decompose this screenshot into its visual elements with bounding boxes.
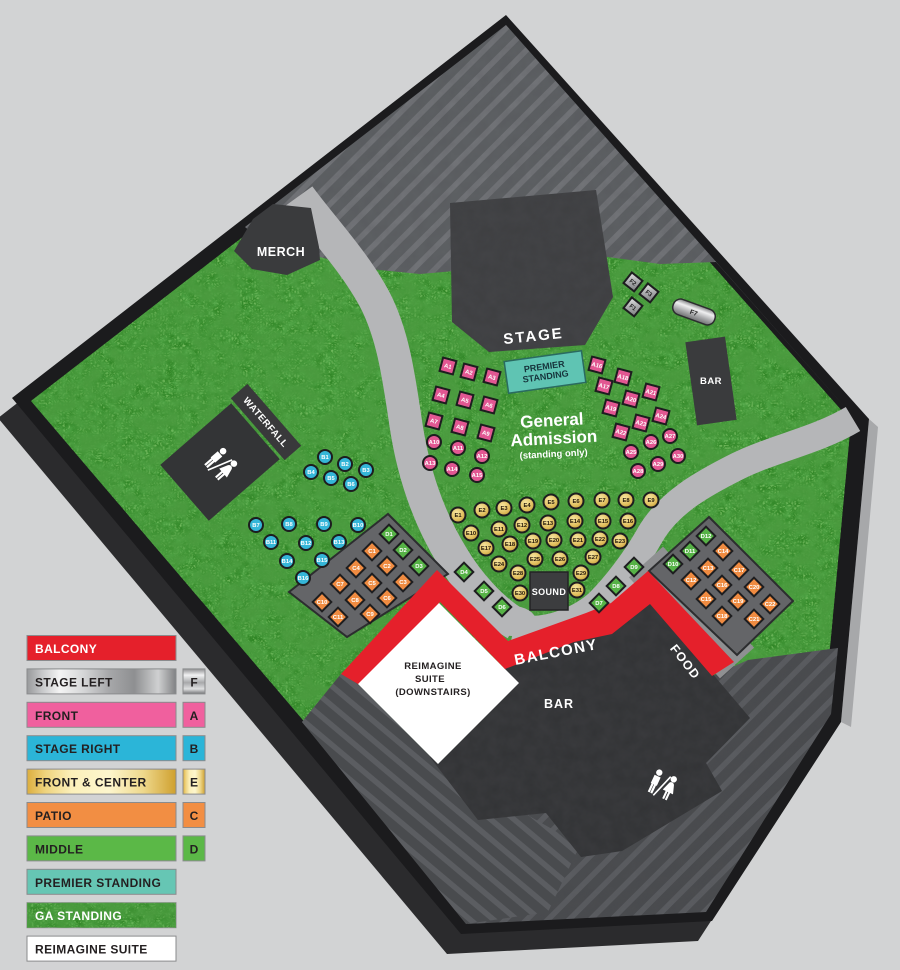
svg-text:C: C — [190, 809, 199, 823]
svg-text:E11: E11 — [494, 527, 505, 533]
svg-text:REIMAGINE SUITE: REIMAGINE SUITE — [35, 943, 148, 957]
svg-text:MERCH: MERCH — [257, 245, 305, 259]
svg-text:B16: B16 — [298, 576, 309, 582]
svg-text:B1: B1 — [321, 455, 329, 461]
svg-text:E23: E23 — [615, 539, 626, 545]
svg-text:A12: A12 — [477, 454, 488, 460]
svg-text:E3: E3 — [500, 506, 508, 512]
svg-text:C13: C13 — [703, 566, 715, 572]
svg-text:C14: C14 — [718, 549, 730, 555]
svg-text:MIDDLE: MIDDLE — [35, 842, 83, 856]
svg-text:A: A — [190, 709, 199, 723]
svg-text:C9: C9 — [366, 612, 374, 618]
svg-text:E28: E28 — [513, 571, 524, 577]
svg-text:B8: B8 — [285, 522, 293, 528]
svg-text:B4: B4 — [307, 470, 315, 476]
svg-text:D11: D11 — [685, 549, 696, 555]
svg-text:STAGE LEFT: STAGE LEFT — [35, 675, 113, 689]
svg-text:C2: C2 — [383, 564, 391, 570]
svg-text:A14: A14 — [447, 467, 458, 473]
svg-text:E6: E6 — [572, 499, 580, 505]
svg-text:E4: E4 — [523, 503, 531, 509]
svg-text:E26: E26 — [555, 557, 566, 563]
svg-text:SOUND: SOUND — [532, 587, 567, 597]
svg-text:E22: E22 — [595, 537, 605, 543]
svg-text:C15: C15 — [701, 597, 713, 603]
svg-text:B14: B14 — [282, 559, 293, 565]
svg-text:A10: A10 — [429, 440, 440, 446]
svg-text:E18: E18 — [505, 542, 516, 548]
svg-text:E19: E19 — [528, 539, 539, 545]
svg-text:C10: C10 — [317, 600, 329, 606]
svg-text:B13: B13 — [334, 540, 345, 546]
svg-text:D2: D2 — [399, 548, 407, 554]
svg-text:C22: C22 — [765, 602, 777, 608]
svg-text:E1: E1 — [454, 513, 462, 519]
svg-text:PREMIER STANDING: PREMIER STANDING — [35, 876, 161, 890]
svg-text:C18: C18 — [717, 614, 729, 620]
svg-text:C1: C1 — [368, 549, 376, 555]
svg-text:E29: E29 — [576, 571, 587, 577]
svg-text:E14: E14 — [570, 519, 581, 525]
svg-text:E10: E10 — [466, 531, 476, 537]
svg-text:E31: E31 — [572, 588, 583, 594]
svg-text:D3: D3 — [415, 564, 423, 570]
svg-text:E5: E5 — [547, 500, 555, 506]
svg-text:E17: E17 — [481, 546, 491, 552]
svg-text:C12: C12 — [686, 578, 698, 584]
svg-text:C17: C17 — [734, 568, 746, 574]
svg-text:E7: E7 — [598, 498, 605, 504]
svg-text:C3: C3 — [399, 580, 407, 586]
svg-text:FRONT & CENTER: FRONT & CENTER — [35, 776, 147, 790]
svg-text:SUITE: SUITE — [415, 674, 445, 685]
svg-text:B2: B2 — [341, 462, 348, 468]
svg-text:C4: C4 — [352, 566, 360, 572]
svg-text:E13: E13 — [543, 521, 554, 527]
svg-text:REIMAGINE: REIMAGINE — [404, 661, 461, 672]
svg-text:D: D — [190, 842, 199, 856]
svg-text:A29: A29 — [653, 462, 664, 468]
svg-text:E15: E15 — [598, 519, 609, 525]
svg-text:B6: B6 — [347, 482, 355, 488]
svg-text:E2: E2 — [478, 508, 485, 514]
svg-text:D5: D5 — [480, 589, 488, 595]
svg-text:A13: A13 — [425, 461, 436, 467]
svg-text:B11: B11 — [266, 540, 277, 546]
svg-text:D10: D10 — [668, 562, 680, 568]
svg-text:D4: D4 — [460, 570, 468, 576]
svg-text:E27: E27 — [588, 555, 598, 561]
svg-text:D6: D6 — [498, 605, 506, 611]
svg-text:F: F — [190, 675, 197, 689]
svg-text:A30: A30 — [673, 454, 684, 460]
svg-text:E: E — [190, 776, 198, 790]
svg-text:GA STANDING: GA STANDING — [35, 909, 122, 923]
svg-text:B12: B12 — [301, 541, 312, 547]
svg-text:E24: E24 — [494, 562, 505, 568]
svg-text:C19: C19 — [733, 599, 745, 605]
svg-text:FRONT: FRONT — [35, 709, 79, 723]
svg-text:E25: E25 — [530, 557, 541, 563]
svg-text:E30: E30 — [515, 591, 525, 597]
svg-text:B7: B7 — [252, 523, 259, 529]
svg-text:STAGE RIGHT: STAGE RIGHT — [35, 742, 121, 756]
svg-text:E8: E8 — [622, 498, 630, 504]
svg-text:B10: B10 — [353, 523, 364, 529]
svg-text:BAR: BAR — [700, 376, 722, 387]
svg-text:B15: B15 — [317, 558, 328, 564]
svg-text:B9: B9 — [320, 522, 328, 528]
svg-text:C16: C16 — [717, 583, 729, 589]
svg-text:E12: E12 — [517, 523, 527, 529]
svg-text:C20: C20 — [749, 585, 761, 591]
svg-text:PATIO: PATIO — [35, 809, 72, 823]
svg-text:C6: C6 — [383, 596, 391, 602]
svg-text:C21: C21 — [749, 617, 761, 623]
svg-text:D1: D1 — [385, 532, 393, 538]
svg-text:(DOWNSTAIRS): (DOWNSTAIRS) — [395, 687, 470, 698]
svg-text:BAR: BAR — [544, 697, 574, 711]
svg-text:BALCONY: BALCONY — [35, 642, 97, 656]
svg-text:D12: D12 — [701, 534, 713, 540]
svg-text:B5: B5 — [327, 476, 335, 482]
svg-text:E16: E16 — [623, 519, 634, 525]
svg-text:E9: E9 — [647, 498, 655, 504]
svg-text:D7: D7 — [595, 601, 603, 607]
svg-text:A27: A27 — [665, 434, 676, 440]
svg-text:E21: E21 — [573, 538, 584, 544]
svg-text:B: B — [190, 742, 199, 756]
svg-text:C7: C7 — [336, 582, 344, 588]
svg-text:A15: A15 — [472, 473, 483, 479]
svg-text:C11: C11 — [333, 615, 344, 621]
svg-text:C8: C8 — [351, 598, 359, 604]
svg-text:A11: A11 — [453, 446, 464, 452]
svg-text:C5: C5 — [368, 581, 376, 587]
svg-text:D8: D8 — [612, 584, 620, 590]
svg-text:D9: D9 — [630, 565, 638, 571]
svg-text:A26: A26 — [646, 440, 657, 446]
svg-text:A25: A25 — [626, 450, 637, 456]
svg-text:B3: B3 — [362, 468, 370, 474]
svg-text:E20: E20 — [549, 538, 559, 544]
svg-text:A28: A28 — [633, 469, 644, 475]
